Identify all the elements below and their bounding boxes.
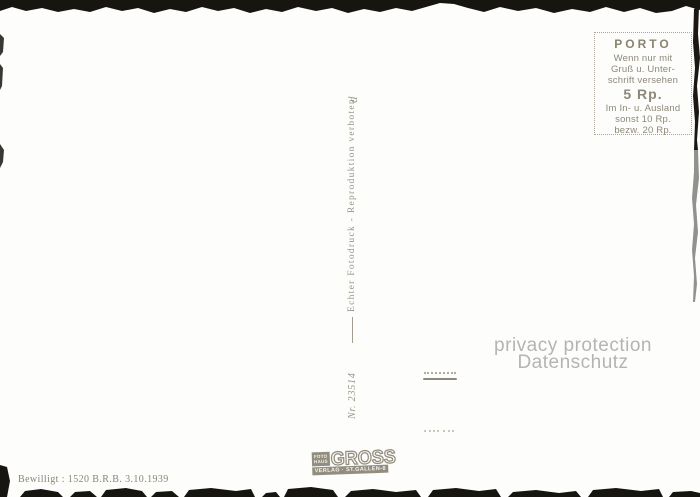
torn-edge-right-faded xyxy=(692,150,699,302)
scratch-mark-solid xyxy=(423,378,457,380)
publisher-logo-small-box: FOTO HAUS xyxy=(312,452,330,467)
permit-note: Bewilligt : 1520 B.R.B. 3.10.1939 xyxy=(18,474,169,485)
porto-condition-line: Wenn nur mit xyxy=(595,53,691,64)
porto-condition-line: schrift versehen xyxy=(595,75,691,86)
publisher-name: GROSS xyxy=(331,448,397,467)
torn-edge-left-notches xyxy=(0,34,4,168)
scratch-mark-dotted xyxy=(424,372,456,374)
porto-title: PORTO xyxy=(595,38,691,51)
scratch-mark-dots xyxy=(424,430,439,432)
publisher-logo: FOTO HAUS GROSS VERLAG · ST.GALLEN-8 xyxy=(312,449,389,476)
publisher-small-word: HAUS xyxy=(314,459,328,464)
porto-foreign-line: Im In- u. Ausland xyxy=(595,103,691,114)
imprint-vertical-text: Echter Fotodruck - Reproduktion verboten xyxy=(347,98,357,312)
privacy-watermark: privacy protection Datenschutz xyxy=(480,338,666,371)
porto-condition-line: Gruß u. Unter- xyxy=(595,64,691,75)
porto-foreign-line: bezw. 20 Rp. xyxy=(595,125,691,136)
scratch-mark-dots xyxy=(443,430,454,432)
porto-foreign-line: sonst 10 Rp. xyxy=(595,114,691,125)
porto-price: 5 Rp. xyxy=(595,87,691,102)
serial-number: Nr. 23514 xyxy=(347,372,358,419)
torn-edge-top xyxy=(0,0,700,13)
privacy-watermark-line2: Datenschutz xyxy=(480,355,666,372)
spine-divider-dash xyxy=(352,317,353,343)
porto-rate-box: PORTO Wenn nur mit Gruß u. Unter- schrif… xyxy=(594,32,692,135)
postcard-back: PORTO Wenn nur mit Gruß u. Unter- schrif… xyxy=(0,0,700,497)
publisher-logo-top: FOTO HAUS GROSS xyxy=(312,449,389,468)
torn-edge-right-dark xyxy=(693,7,700,150)
